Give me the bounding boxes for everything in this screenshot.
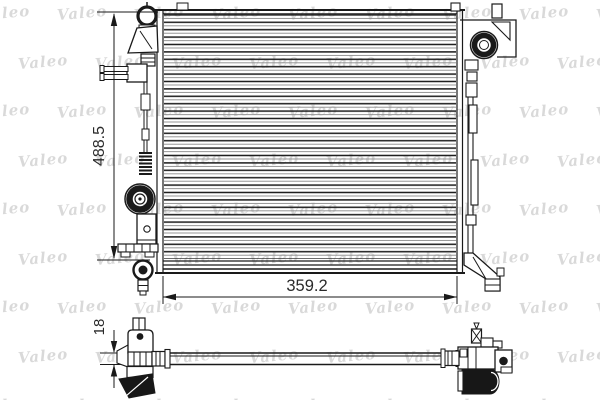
technical-drawing-page: ValeoValeoValeoValeoValeoValeoValeoValeo… bbox=[0, 0, 600, 400]
arrow-right-icon bbox=[444, 294, 457, 300]
inlet-port bbox=[125, 184, 155, 214]
left-tank-fittings bbox=[100, 2, 158, 295]
core-profile-strip bbox=[126, 350, 461, 367]
radiator-bottom-view bbox=[117, 318, 512, 398]
right-tank bbox=[451, 3, 516, 291]
lower-bracket bbox=[118, 244, 158, 257]
dimension-width: 359.2 bbox=[163, 276, 457, 304]
radiator-technical-drawing: 488.5 359.2 18 bbox=[0, 0, 600, 400]
lower-box bbox=[137, 214, 156, 244]
radiator-core bbox=[155, 3, 465, 273]
upper-bracket bbox=[128, 26, 158, 53]
two-pin-connector bbox=[100, 64, 147, 82]
left-connector-assembly bbox=[117, 318, 170, 398]
top-stud-left bbox=[451, 3, 460, 11]
sensor-rod bbox=[141, 82, 150, 152]
arrow-up-icon bbox=[111, 365, 117, 377]
lower-right-bracket bbox=[464, 253, 504, 291]
arrow-down-icon bbox=[111, 341, 117, 353]
height-dimension-label: 488.5 bbox=[91, 126, 108, 166]
thickness-dimension-label: 18 bbox=[91, 319, 108, 336]
arrow-up-icon bbox=[111, 13, 117, 26]
arrow-left-icon bbox=[163, 294, 176, 300]
drain-plug bbox=[134, 261, 153, 296]
width-dimension-label: 359.2 bbox=[286, 277, 327, 295]
right-connector-assembly bbox=[441, 323, 512, 394]
filler-neck bbox=[471, 32, 498, 59]
core-top-tab bbox=[177, 3, 188, 10]
radiator-front-view bbox=[100, 2, 516, 295]
top-stud-right bbox=[492, 4, 502, 18]
arrow-down-icon bbox=[111, 246, 117, 259]
spring-ribs bbox=[139, 153, 152, 174]
